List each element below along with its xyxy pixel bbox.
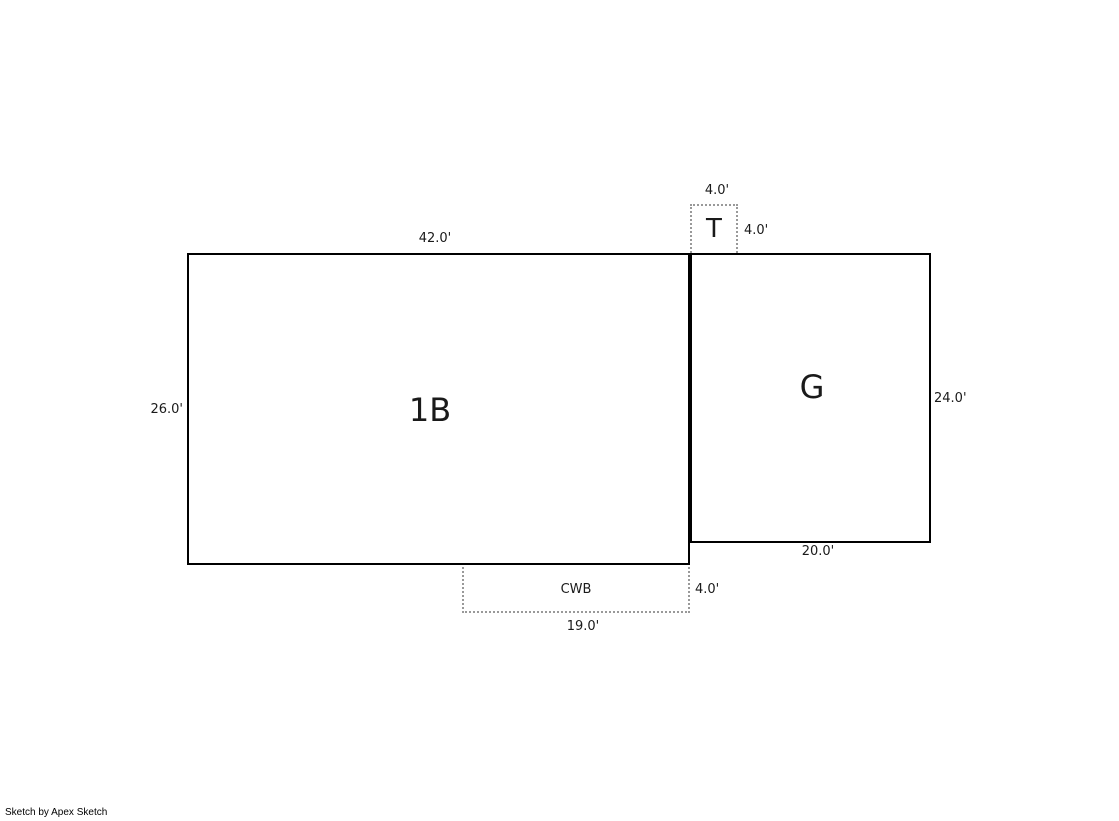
area-t-dimension-right: 4.0' <box>744 223 768 239</box>
area-1b-dimension-top: 42.0' <box>419 231 452 247</box>
area-t-dimension-top: 4.0' <box>705 183 729 199</box>
area-cwb-outline[interactable]: CWB <box>462 567 690 613</box>
area-g-label: G <box>800 368 825 406</box>
area-g-dimension-right: 24.0' <box>934 391 967 407</box>
area-t-outline[interactable]: T <box>690 204 738 253</box>
sketch-credit-watermark: Sketch by Apex Sketch <box>5 807 107 818</box>
sketch-canvas: 1B 42.0' 26.0' G 24.0' 20.0' T 4.0' 4.0'… <box>0 0 1119 821</box>
area-g-dimension-bottom: 20.0' <box>802 544 835 560</box>
area-1b-label: 1B <box>409 391 451 429</box>
area-cwb-dimension-right: 4.0' <box>695 582 719 598</box>
area-t-label: T <box>706 214 722 244</box>
area-1b-dimension-left: 26.0' <box>140 402 183 418</box>
area-cwb-label: CWB <box>561 582 592 597</box>
area-cwb-dimension-bottom: 19.0' <box>567 619 600 635</box>
